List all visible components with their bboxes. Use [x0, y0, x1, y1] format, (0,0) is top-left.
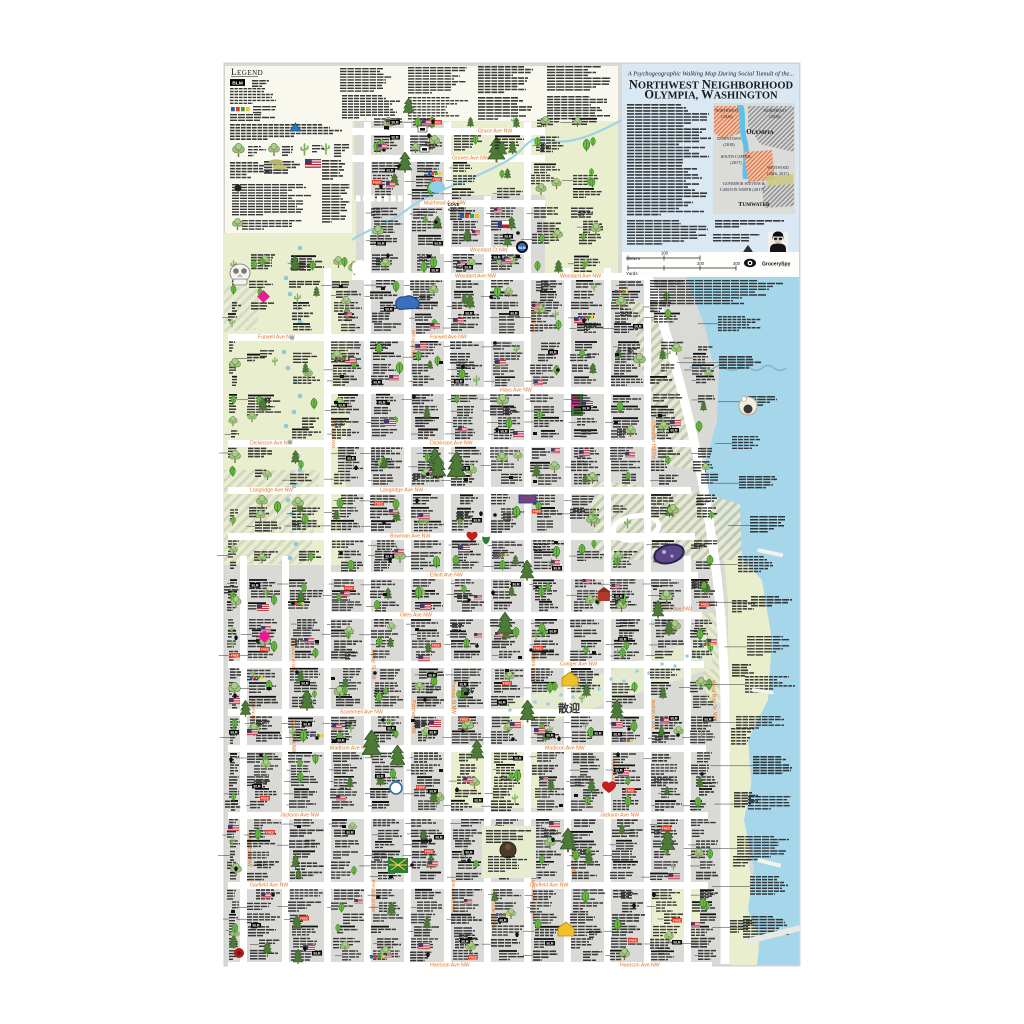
svg-text:Madison Ave NW: Madison Ave NW	[545, 745, 585, 751]
svg-text:Jackson Ave NW: Jackson Ave NW	[600, 812, 639, 818]
svg-text:Langridge Ave NW: Langridge Ave NW	[380, 487, 423, 493]
svg-text:NAMASTE: NAMASTE	[448, 208, 466, 212]
svg-text:Groves Ave NW: Groves Ave NW	[452, 155, 489, 161]
svg-text:NORTHWEST: NORTHWEST	[715, 108, 739, 113]
svg-text:GrocerySpy: GrocerySpy	[762, 262, 791, 268]
svg-text:Scammell Ave NW: Scammell Ave NW	[340, 709, 383, 715]
svg-text:Grace Ave NW: Grace Ave NW	[478, 128, 512, 134]
svg-text:Woodard Ave NW: Woodard Ave NW	[455, 273, 496, 279]
svg-text:SOUTH CAPITOL: SOUTH CAPITOL	[721, 154, 752, 159]
svg-text:OLYMPIA, WASHINGTON: OLYMPIA, WASHINGTON	[644, 88, 778, 102]
svg-text:Harrison Ave NW: Harrison Ave NW	[620, 962, 660, 968]
svg-text:TUMWATER: TUMWATER	[738, 201, 770, 208]
svg-text:(2018): (2018)	[723, 142, 735, 147]
svg-text:A Psychogeographic Walking Map: A Psychogeographic Walking Map During So…	[627, 71, 795, 78]
svg-text:Dickinson Ave NW: Dickinson Ave NW	[250, 440, 293, 446]
svg-text:Woodard Ct NW: Woodard Ct NW	[470, 247, 508, 253]
svg-text:Thomas St NW: Thomas St NW	[450, 680, 456, 714]
svg-text:(2020): (2020)	[721, 114, 733, 119]
svg-text:WESTWOOD: WESTWOOD	[767, 165, 789, 170]
svg-text:Bowman Ave NW: Bowman Ave NW	[390, 533, 430, 539]
svg-text:100: 100	[661, 251, 669, 256]
svg-text:Farwell Ave NW: Farwell Ave NW	[258, 334, 295, 340]
svg-text:Elliott Ave NW: Elliott Ave NW	[430, 572, 463, 578]
svg-text:Hays Ave NW: Hays Ave NW	[500, 387, 532, 393]
svg-text:LEGEND: LEGEND	[231, 67, 263, 77]
svg-text:Langridge Ave NW: Langridge Ave NW	[250, 487, 293, 493]
svg-text:OLYMPIA: OLYMPIA	[746, 128, 774, 136]
svg-text:Dickinson Ave NW: Dickinson Ave NW	[430, 440, 473, 446]
svg-text:Conger Ave NW: Conger Ave NW	[560, 661, 597, 667]
svg-text:DOWNTOWN: DOWNTOWN	[717, 136, 741, 141]
svg-text:Muirhead Ave NW: Muirhead Ave NW	[424, 200, 466, 206]
svg-text:散迎: 散迎	[558, 701, 580, 715]
svg-text:Jackson Ave NW: Jackson Ave NW	[280, 812, 319, 818]
svg-text:CARLYON NORTH (2017): CARLYON NORTH (2017)	[720, 187, 765, 192]
svg-text:Yards: Yards	[626, 271, 638, 276]
svg-text:300: 300	[733, 261, 741, 266]
svg-text:Harrison Ave NW: Harrison Ave NW	[430, 962, 470, 968]
svg-text:Plymouth St NW: Plymouth St NW	[246, 830, 252, 867]
svg-text:(2020): (2020)	[769, 114, 781, 119]
svg-text:Percival St NW: Percival St NW	[370, 880, 376, 913]
svg-text:NORTHEAST: NORTHEAST	[764, 108, 788, 113]
svg-text:Meters: Meters	[626, 256, 641, 261]
svg-text:BLM: BLM	[518, 246, 526, 250]
svg-text:Farwell Ave NW: Farwell Ave NW	[430, 334, 467, 340]
svg-text:Giles Ave NW: Giles Ave NW	[400, 612, 432, 618]
svg-text:Woodard Ave NW: Woodard Ave NW	[560, 273, 601, 279]
svg-text:Giles Ave NW: Giles Ave NW	[660, 606, 692, 612]
svg-text:200: 200	[697, 261, 705, 266]
svg-text:Garfield Ave NW: Garfield Ave NW	[250, 882, 288, 888]
svg-text:Milroy St NW: Milroy St NW	[410, 330, 416, 358]
svg-text:(2017): (2017)	[730, 160, 742, 165]
svg-text:GOVERNOR STEVENS &: GOVERNOR STEVENS &	[723, 181, 766, 186]
svg-text:Schneider Hill Rd: Schneider Hill Rd	[650, 420, 656, 459]
svg-text:LOVE: LOVE	[448, 202, 460, 207]
